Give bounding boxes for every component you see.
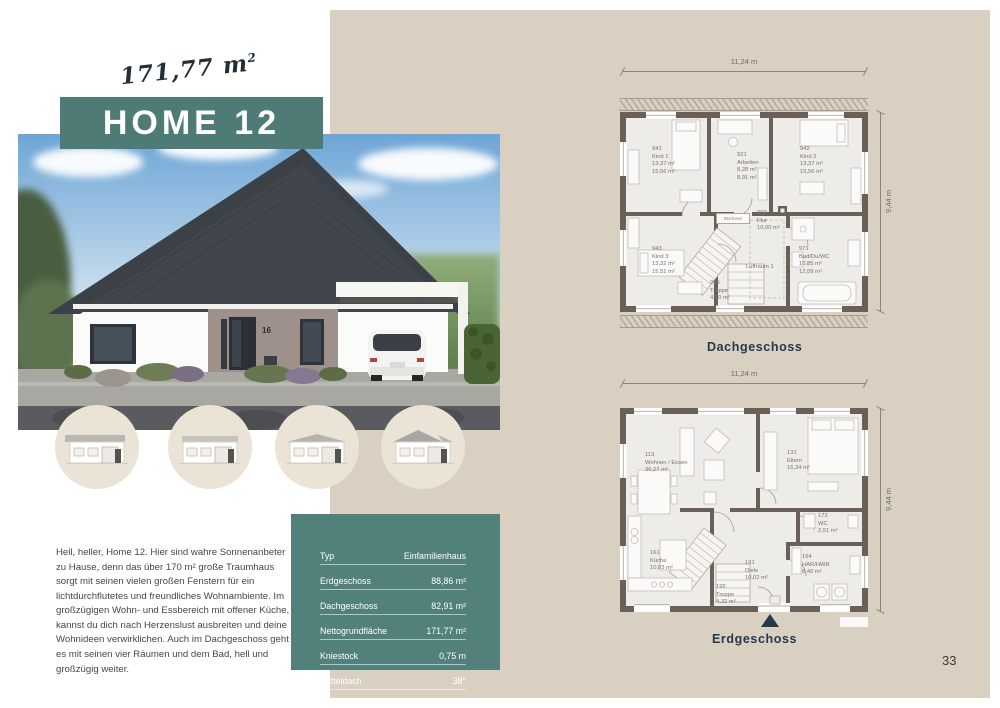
brochure-page: 16 171,77 m2 HOME 12 — [0, 0, 1000, 708]
room-label-luftraum: Luftraum 1 — [746, 264, 774, 272]
terrace-chip — [840, 617, 868, 627]
area-sup: 2 — [247, 50, 258, 65]
spec-row-kniestock: Kniestock 0,75 m — [320, 640, 466, 665]
dachgeschoss-plan: 941Kind 1 13,37 m²15,56 m² 921Arbeiten 8… — [620, 112, 868, 312]
eg-width-dimension: 11,24 m — [620, 369, 868, 378]
house-variant-flat-roof-2-icon — [175, 423, 245, 471]
room-label-arbeiten: 921Arbeiten 8,28 m²8,91 m² — [737, 152, 759, 182]
room-label-diele: 191Diele 10,02 m² — [745, 560, 768, 583]
spec-value: 82,91 m² — [431, 601, 466, 611]
spec-value: 88,86 m² — [431, 576, 466, 586]
dg-roof-hatch-top — [620, 98, 868, 111]
house-variant-4 — [381, 405, 465, 489]
eg-depth-dimension: 9,44 m — [884, 488, 893, 511]
room-label-treppe-eg: 195Treppe 4,32 m² — [716, 584, 736, 607]
spec-value: 38° — [453, 676, 466, 686]
area-handwritten: 171,77 m2 — [119, 49, 261, 90]
dg-roof-hatch-bottom — [620, 315, 868, 328]
eg-depth-dimension-line — [880, 408, 881, 612]
house-variant-1 — [55, 405, 139, 489]
dg-width-dimension: 11,24 m — [620, 57, 868, 66]
house-variant-2 — [168, 405, 252, 489]
room-label-bad: 971Bad/Du/WC 10,85 m²12,09 m² — [799, 246, 830, 276]
erdgeschoss-plan-drawing — [620, 408, 868, 612]
erdgeschoss-caption: Erdgeschoss — [712, 632, 797, 646]
spec-label: Dachgeschoss — [320, 601, 378, 611]
intro-text: Hell, heller, Home 12. Hier sind wahre S… — [56, 546, 294, 677]
room-label-kind1: 941Kind 1 13,37 m²15,56 m² — [652, 146, 675, 176]
house-variant-flat-roof-icon — [62, 423, 132, 471]
shelf-label: Bücherei — [716, 213, 750, 224]
room-label-har-hwr: 164HAR/HWR 8,40 m² — [802, 554, 830, 577]
spec-row-typ: Typ Einfamilienhaus — [320, 540, 466, 565]
house-photo: 16 — [18, 134, 500, 430]
spec-label: Erdgeschoss — [320, 576, 371, 586]
room-label-eltern: 131Eltern 16,34 m² — [787, 450, 810, 473]
house-variant-3 — [275, 405, 359, 489]
room-label-kind2: 942Kind 2 13,37 m²15,56 m² — [800, 146, 823, 176]
spec-row-nettogrundflaeche: Nettogrundfläche 171,77 m² — [320, 615, 466, 640]
spec-row-dachgeschoss: Dachgeschoss 82,91 m² — [320, 590, 466, 615]
spec-value: 0,75 m — [439, 651, 466, 661]
dachgeschoss-plan-drawing — [620, 112, 868, 312]
spec-label: Kniestock — [320, 651, 358, 661]
room-label-kueche: 161Küche 10,83 m² — [650, 550, 673, 573]
page-title: HOME 12 — [103, 104, 280, 143]
spec-value: Einfamilienhaus — [404, 551, 466, 561]
room-label-wohnen-essen: 113Wohnen / Essen 36,27 m² — [645, 452, 687, 475]
dachgeschoss-caption: Dachgeschoss — [707, 340, 802, 354]
room-label-flur: 992Flur 10,00 m² — [757, 210, 780, 233]
spec-label: Satteldach — [320, 676, 362, 686]
spec-row-satteldach: Satteldach 38° — [320, 665, 466, 690]
room-label-treppe-dg: 995Treppe 4,30 m² — [710, 280, 730, 303]
dg-depth-dimension-line — [880, 112, 881, 312]
eg-width-dimension-line — [622, 383, 866, 384]
erdgeschoss-plan: 113Wohnen / Essen 36,27 m² 131Eltern 16,… — [620, 408, 868, 612]
house-number: 16 — [262, 326, 271, 335]
room-label-wc: 172WC 2,51 m² — [818, 513, 838, 536]
house-photo-art — [18, 134, 500, 430]
spec-value: 171,77 m² — [426, 626, 466, 636]
spec-label: Typ — [320, 551, 334, 561]
entrance-arrow-icon — [761, 614, 779, 627]
page-number: 33 — [942, 653, 956, 668]
spec-label: Nettogrundfläche — [320, 626, 387, 636]
room-label-kind3: 943Kind 3 13,32 m²15,51 m² — [652, 246, 675, 276]
title-banner: HOME 12 — [60, 97, 323, 149]
dg-width-dimension-line — [622, 71, 866, 72]
house-variant-low-gable-icon — [282, 423, 352, 471]
specs-panel: Typ Einfamilienhaus Erdgeschoss 88,86 m²… — [291, 514, 500, 670]
area-value: 171,77 m — [119, 50, 249, 90]
spec-row-erdgeschoss: Erdgeschoss 88,86 m² — [320, 565, 466, 590]
dg-depth-dimension: 9,44 m — [884, 190, 893, 213]
house-variant-gable-icon — [388, 423, 458, 471]
